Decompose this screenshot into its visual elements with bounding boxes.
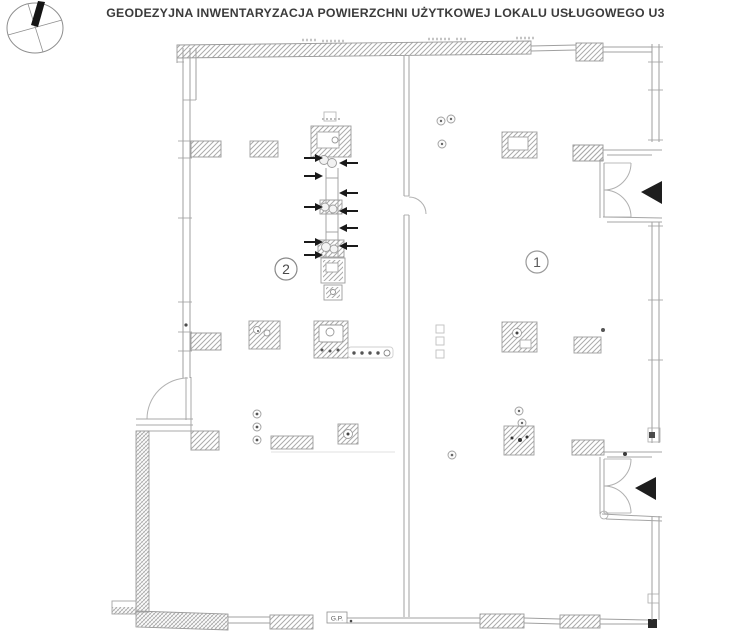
lower-left-wall [112,431,149,614]
arrow-left-icon [339,159,358,167]
arrow-right-icon [304,172,323,180]
entrance-wall-stub [572,440,604,455]
faint-dimension-text-marks [302,38,534,41]
entrance-arrow-icon [635,477,656,500]
arrow-left-icon [339,189,358,197]
room-number: 2 [282,261,290,277]
fixture-hatched-bar [574,337,601,353]
dividing-wall [404,55,426,617]
fixture-dotted-strip [348,347,393,358]
room-number: 1 [533,254,541,270]
north-arrow-icon [7,1,63,53]
wall-pier [191,333,221,350]
floor-plan-drawing: G.P. [0,0,741,632]
left-window-wall [178,48,221,378]
gp-marker-label: G.P. [331,616,343,623]
room-label-2: 2 [275,258,297,280]
bottom-wall-pier [480,614,524,628]
bottom-wall-pier [560,615,600,628]
fixture-hatched-bar [271,436,313,449]
room-2-fixtures [249,141,395,452]
entrance-door-2 [572,440,662,521]
wall-pier [191,431,219,450]
top-wall-pier [576,43,603,61]
interior-door-swing [409,197,426,214]
right-window-wall [648,44,663,620]
fixture-hatched-block [250,141,278,157]
bottom-wall: G.P. [136,611,657,630]
corner-dark-square [648,619,657,628]
entrance-arrow-icon [641,181,662,204]
top-wall [177,41,652,63]
arrow-left-icon [339,224,358,232]
fixture-hatched-bar [573,145,603,161]
bottom-wall-pier [270,615,313,629]
room-1-fixtures [436,115,605,459]
wall-pier [191,141,221,157]
room-label-1: 1 [526,251,548,273]
